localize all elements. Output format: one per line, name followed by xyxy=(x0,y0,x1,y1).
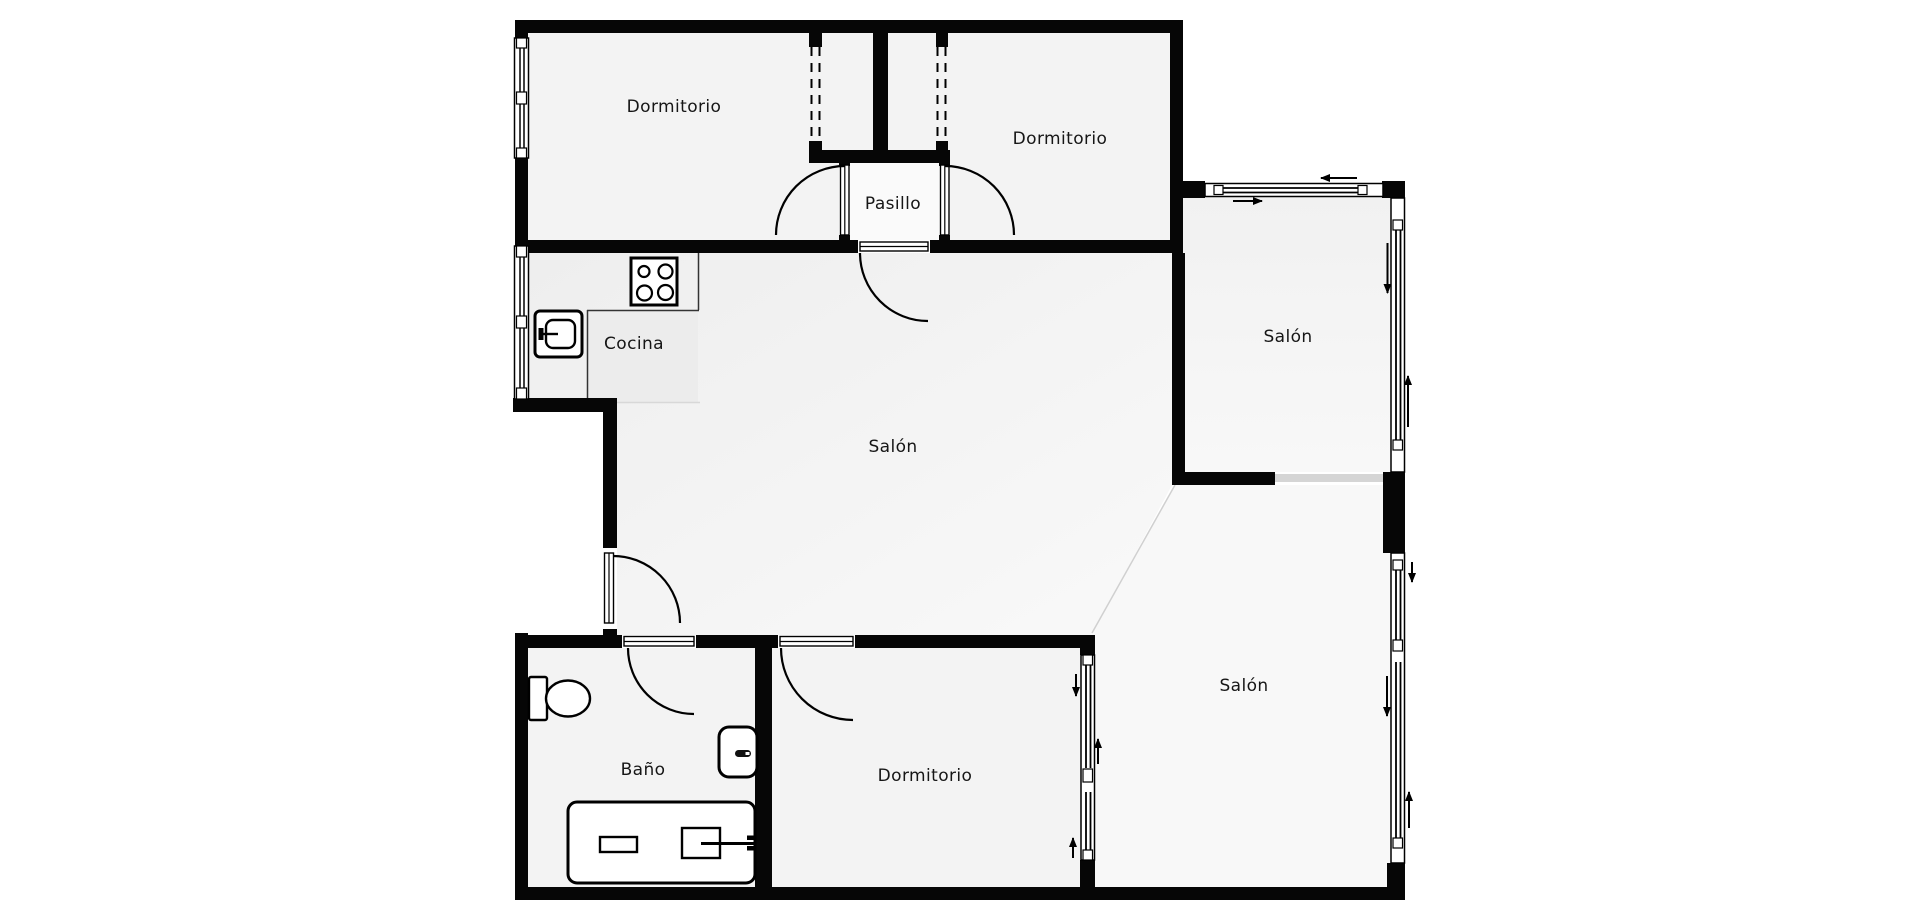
closet-stub-2 xyxy=(809,141,822,163)
wall-top xyxy=(515,20,1183,33)
wall-bano-left xyxy=(515,633,528,900)
room-label-pasillo: Pasillo xyxy=(865,194,921,214)
pasillo-jamb-2 xyxy=(839,233,850,253)
wall-closet-middle xyxy=(873,33,888,163)
window-terrace-bottom-right xyxy=(1391,553,1405,863)
wall-terrace-right-block xyxy=(1383,472,1405,553)
room-label-salon-terraza-inferior: Salón xyxy=(1219,676,1268,696)
wall-dorm-bottom-top xyxy=(855,635,1095,648)
window-terrace-right xyxy=(1391,198,1405,472)
pasillo-jamb-4 xyxy=(939,233,950,253)
terrace-corner-tr xyxy=(1382,181,1405,198)
wall-main-horizontal-a xyxy=(515,240,858,253)
sliding-door-terrace-top xyxy=(1205,184,1383,197)
wall-cocina-bottom xyxy=(513,398,617,412)
wall-dorm-right xyxy=(1170,20,1183,253)
terrace-opening-strip xyxy=(1275,474,1383,482)
corner-bottom-right xyxy=(1387,863,1405,900)
wall-bottom xyxy=(515,887,1405,900)
room-label-salon-central: Salón xyxy=(868,437,917,457)
floor-plan: Dormitorio Dormitorio Pasillo Cocina Sal… xyxy=(0,0,1920,920)
window-dormitorio-terrace xyxy=(1081,655,1095,860)
window-cocina-left xyxy=(515,246,529,399)
wall-bano-top-a xyxy=(515,635,622,648)
wall-bano-top-b xyxy=(696,635,778,648)
room-label-dormitorio-top-right: Dormitorio xyxy=(1013,129,1108,149)
room-label-salon-terraza-superior: Salón xyxy=(1263,327,1312,347)
window-stub-top xyxy=(1080,635,1095,655)
sink-icon xyxy=(719,727,757,777)
closet-stub-3 xyxy=(936,33,948,47)
room-label-bano: Baño xyxy=(621,760,666,780)
stove-hob-icon xyxy=(631,258,677,305)
toilet-icon xyxy=(529,677,590,720)
bathtub-icon xyxy=(568,802,755,883)
room-label-dormitorio-top-left: Dormitorio xyxy=(627,97,722,117)
wall-main-horizontal-b xyxy=(930,240,1183,253)
room-label-dormitorio-inferior: Dormitorio xyxy=(878,766,973,786)
closet-stub-1 xyxy=(809,33,822,47)
room-floors xyxy=(528,33,1392,887)
washing-machine-icon xyxy=(535,311,582,357)
terrace-corner-tl xyxy=(1183,181,1205,198)
room-label-cocina: Cocina xyxy=(604,334,664,354)
wall-terrace-bottom xyxy=(1172,472,1275,485)
window-dormitorio-left xyxy=(515,38,529,158)
window-stub-bottom xyxy=(1080,860,1095,887)
wall-salon-right xyxy=(1172,253,1185,485)
